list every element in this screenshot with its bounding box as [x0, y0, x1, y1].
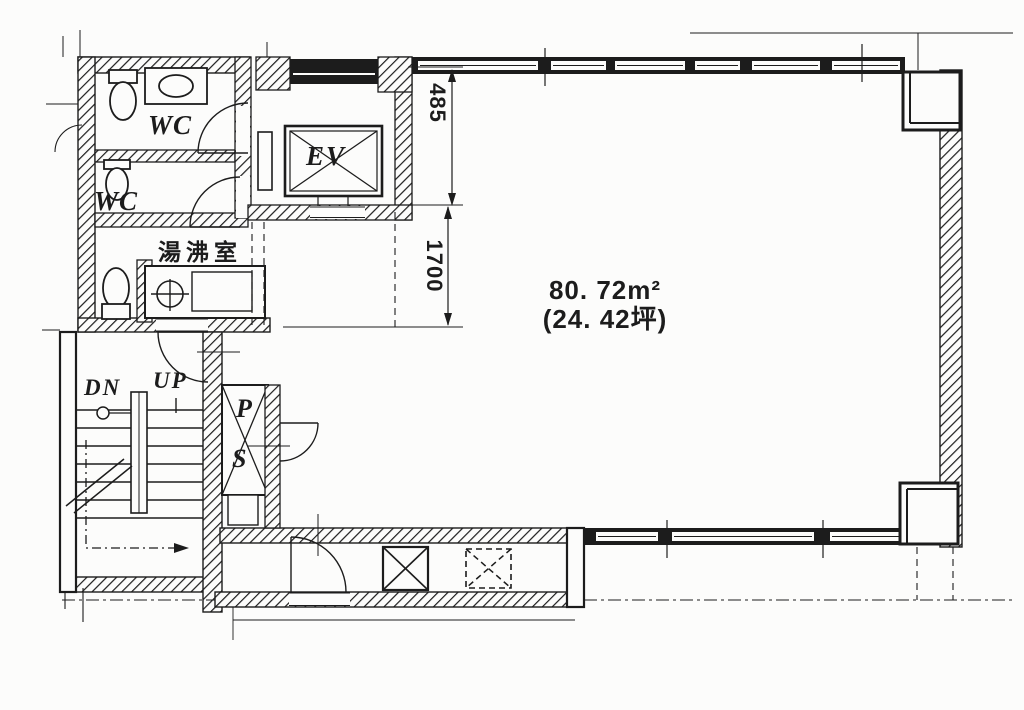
- kitchenette-counter: [145, 266, 265, 318]
- hatch-box-solid: [383, 547, 428, 590]
- floorplan-drawing: [0, 0, 1024, 710]
- top-window-wall: [412, 57, 905, 74]
- dimension-485: 485: [426, 76, 448, 130]
- room-label-kitchenette: 湯沸室: [158, 241, 242, 264]
- stairwell: [66, 392, 203, 553]
- elevator-shaft: [248, 57, 412, 220]
- stairs-down-label: DN: [84, 376, 121, 399]
- pipe-shaft-label-s: S: [232, 446, 246, 472]
- elevator-label: EV: [306, 143, 346, 170]
- stairs-up-label: UP: [153, 369, 188, 392]
- area-label-tsubo: (24. 42坪): [495, 306, 715, 332]
- floorplan-canvas: WC WC 湯沸室 EV DN UP P S 485 1700 80. 72m²…: [0, 0, 1024, 710]
- pipe-shaft-label-p: P: [236, 396, 252, 422]
- toilet-fixture-1: [109, 70, 137, 120]
- dimension-1700: 1700: [423, 235, 445, 297]
- bottom-window-wall: [584, 528, 940, 545]
- sink-fixture: [145, 68, 207, 104]
- room-label-wc-upper: WC: [148, 112, 192, 139]
- hatch-box-dashed: [466, 549, 511, 588]
- stair-walk-line: [86, 440, 174, 548]
- room-label-wc-lower: WC: [94, 188, 138, 215]
- toilet-fixture-3: [102, 268, 130, 319]
- area-label-m2: 80. 72m²: [495, 277, 715, 303]
